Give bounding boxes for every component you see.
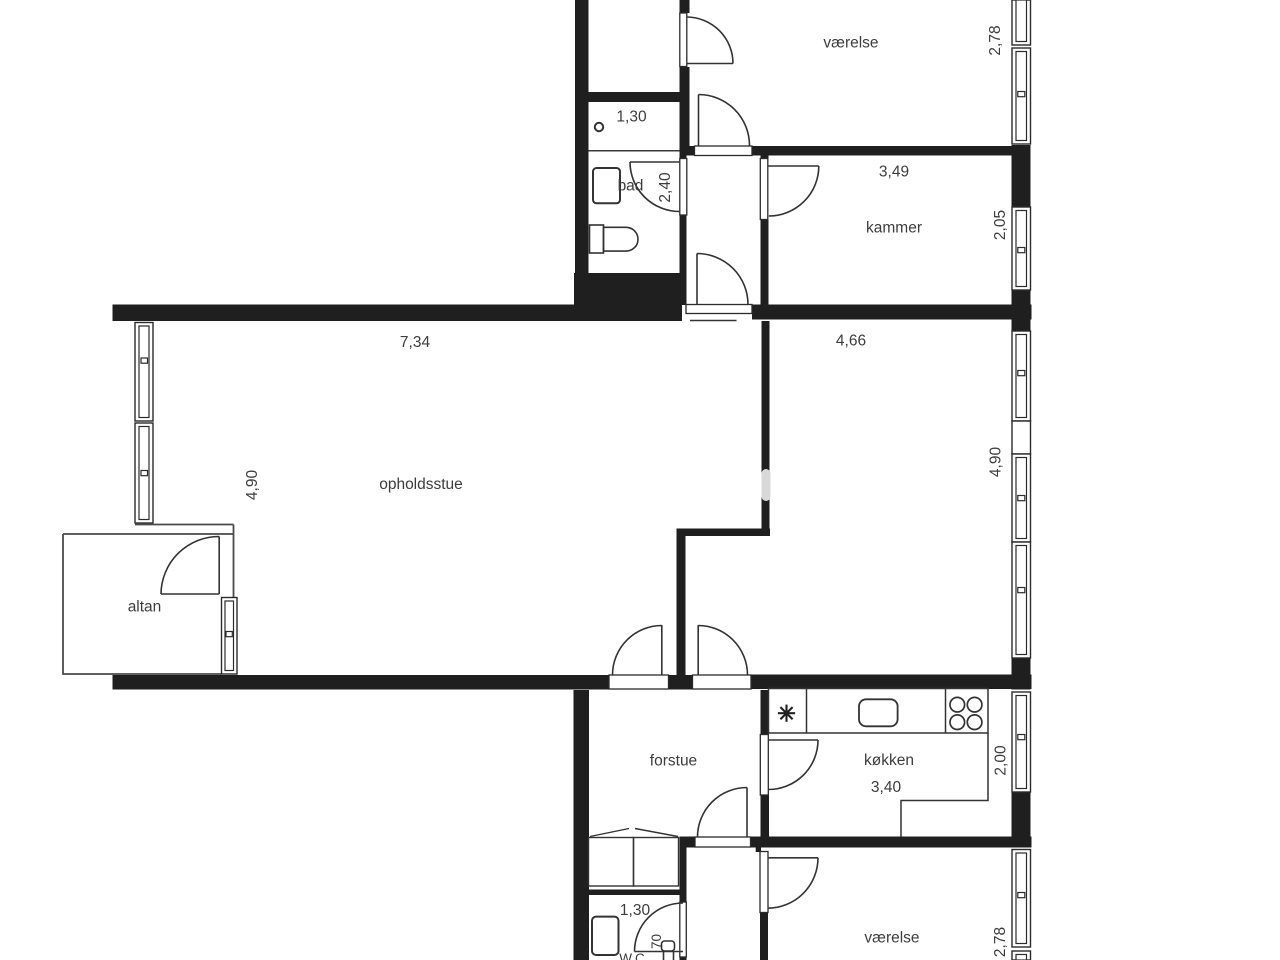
svg-text:W.C: W.C [619, 951, 645, 960]
svg-text:2,05: 2,05 [992, 210, 1009, 240]
svg-text:70: 70 [649, 934, 664, 949]
svg-text:7,34: 7,34 [400, 334, 431, 351]
svg-text:3,40: 3,40 [871, 779, 902, 796]
svg-text:værelse: værelse [823, 35, 878, 52]
svg-text:4,90: 4,90 [244, 470, 261, 501]
svg-text:forstue: forstue [650, 753, 697, 770]
svg-text:2,40: 2,40 [657, 172, 674, 203]
svg-text:køkken: køkken [864, 752, 914, 769]
svg-text:1,30: 1,30 [616, 109, 647, 126]
svg-text:altan: altan [128, 599, 162, 616]
svg-text:bad: bad [618, 178, 644, 195]
svg-text:værelse: værelse [864, 930, 919, 947]
svg-text:2,78: 2,78 [992, 927, 1009, 957]
svg-text:3,49: 3,49 [879, 164, 909, 181]
svg-text:4,90: 4,90 [988, 447, 1005, 478]
svg-text:kammer: kammer [866, 220, 922, 237]
svg-text:1,30: 1,30 [620, 902, 651, 919]
svg-text:4,66: 4,66 [836, 333, 866, 350]
svg-text:2,00: 2,00 [993, 745, 1010, 776]
svg-text:opholdsstue: opholdsstue [379, 476, 463, 493]
svg-text:2,78: 2,78 [987, 25, 1004, 55]
